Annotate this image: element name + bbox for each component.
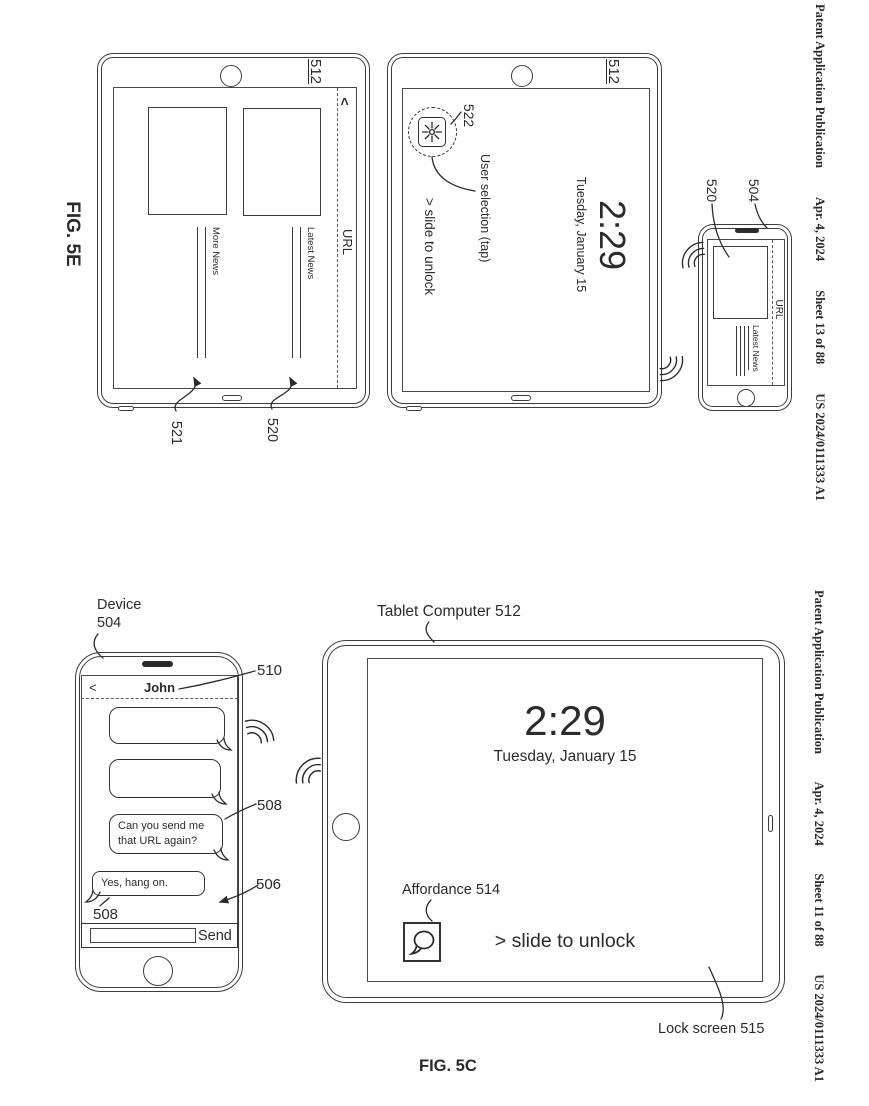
fig5e-label: FIG. 5E [57, 195, 88, 273]
contact-name: John [81, 680, 238, 695]
page-header-bottom: Patent Application Publication Apr. 4, 2… [811, 590, 827, 1082]
home-button [737, 389, 755, 407]
sheet-number: Sheet 11 of 88 [812, 873, 827, 946]
device-label-line1: Device [97, 596, 141, 614]
tablet-computer-label: Tablet Computer 512 [377, 603, 521, 621]
lock-clock: 2:29 [465, 697, 665, 745]
publication-date: Apr. 4, 2024 [813, 197, 828, 261]
user-selection-note: User selection (tap) [477, 154, 494, 264]
news-image-placeholder [243, 108, 321, 216]
slide-to-unlock-text: > slide to unlock [421, 188, 438, 305]
device-label-ref: 504 [97, 614, 141, 632]
callout-522: 522 [460, 102, 478, 129]
tablet-ref-512: 512 [604, 56, 624, 87]
camera-icon [220, 65, 242, 87]
callout-510: 510 [257, 662, 282, 679]
message-bubble-outgoing: Yes, hang on. [92, 871, 205, 896]
message-input-field [90, 928, 196, 943]
news-text-line [744, 326, 745, 376]
home-button [332, 813, 360, 841]
news-image-placeholder [148, 107, 227, 215]
tap-selection-indicator [408, 107, 457, 157]
affordance-label: Affordance 514 [402, 882, 500, 898]
message-bubble-empty [109, 759, 221, 798]
callout-508-incoming: 508 [257, 797, 282, 814]
wifi-waves-icon [240, 715, 278, 748]
message-text-line2: that URL again? [118, 834, 222, 849]
publication-title: Patent Application Publication [813, 4, 828, 168]
news-text-line [740, 326, 741, 376]
camera-slot [768, 815, 773, 832]
news-text-line [197, 227, 198, 358]
lock-date: Tuesday, January 15 [465, 748, 665, 766]
url-bar: URL [772, 299, 786, 320]
callout-520: 520 [704, 176, 721, 205]
slide-to-unlock-text: > slide to unlock [465, 930, 665, 953]
side-button [118, 406, 134, 411]
news-text-line [300, 227, 301, 358]
leader-tablet-label [426, 622, 434, 642]
speaker-icon [142, 661, 173, 667]
message-text: Yes, hang on. [101, 877, 168, 889]
news-text-line [205, 227, 206, 358]
browser-toolbar-divider [337, 88, 338, 388]
news-item-title: Latest News [750, 325, 762, 376]
message-bubble-empty [109, 707, 225, 744]
message-text-line1: Can you send me [118, 819, 222, 834]
document-number: US 2024/0111333 A1 [813, 393, 828, 501]
camera-icon [511, 65, 533, 87]
home-button [511, 395, 531, 401]
send-button: Send [198, 925, 236, 947]
lock-date: Tuesday, January 15 [573, 170, 589, 299]
page-header-top: Patent Application Publication Apr. 4, 2… [812, 4, 828, 501]
tablet-ref-512: 512 [306, 56, 326, 87]
callout-521: 521 [166, 412, 186, 454]
patent-page: Patent Application Publication Apr. 4, 2… [0, 0, 869, 1106]
news-text-line [292, 227, 293, 358]
sheet-number: Sheet 13 of 88 [813, 290, 828, 364]
news-text-line [736, 326, 737, 376]
callout-504: 504 [746, 176, 763, 205]
publication-date: Apr. 4, 2024 [812, 782, 827, 846]
message-affordance-icon [403, 922, 441, 962]
document-number: US 2024/0111333 A1 [812, 974, 827, 1082]
lock-screen-label: Lock screen 515 [658, 1021, 764, 1037]
speaker-icon [735, 228, 759, 233]
message-bubble-incoming: Can you send me that URL again? [109, 814, 223, 854]
news-item-title: More News [209, 227, 222, 273]
lock-clock: 2:29 [591, 196, 633, 274]
chat-bubble-icon [412, 932, 434, 954]
news-image-placeholder [713, 246, 768, 319]
home-button [222, 395, 242, 401]
side-button [406, 406, 422, 411]
home-button [143, 956, 173, 986]
callout-506: 506 [256, 876, 281, 893]
news-text-line [748, 326, 749, 370]
publication-title: Patent Application Publication [812, 590, 827, 754]
news-item-title: Latest News [304, 227, 317, 277]
url-bar: URL [339, 224, 357, 260]
callout-508-outgoing: 508 [93, 906, 118, 923]
device-label: Device 504 [97, 596, 141, 632]
fig5c-label: FIG. 5C [419, 1057, 477, 1076]
back-chevron-icon: < [337, 93, 354, 110]
callout-520: 520 [262, 409, 282, 451]
